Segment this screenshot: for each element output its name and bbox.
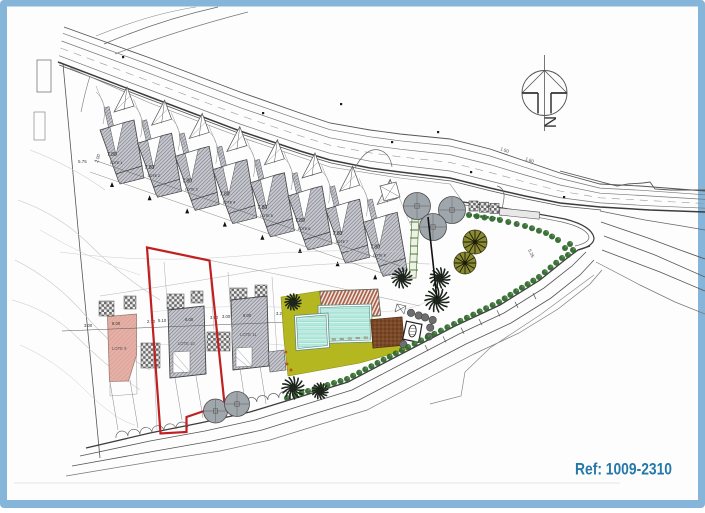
svg-text:5.10: 5.10 bbox=[158, 318, 167, 323]
svg-text:7.80: 7.80 bbox=[107, 152, 117, 158]
svg-text:LOTE 2: LOTE 2 bbox=[148, 174, 160, 178]
svg-text:7.80: 7.80 bbox=[333, 231, 343, 237]
svg-text:LOTE 8: LOTE 8 bbox=[373, 253, 385, 257]
svg-text:3.00: 3.00 bbox=[222, 314, 231, 319]
svg-text:LOTE 9: LOTE 9 bbox=[112, 346, 127, 351]
svg-text:LOTE 6: LOTE 6 bbox=[298, 227, 310, 231]
svg-text:7.80: 7.80 bbox=[182, 178, 192, 184]
svg-text:Ref: 1009-2310: Ref: 1009-2310 bbox=[575, 461, 672, 479]
svg-text:LOTE 3: LOTE 3 bbox=[185, 187, 197, 191]
svg-text:LOTE 1: LOTE 1 bbox=[110, 161, 122, 165]
svg-text:7.80: 7.80 bbox=[295, 218, 305, 224]
svg-text:7.80: 7.80 bbox=[370, 244, 380, 250]
svg-text:7.80: 7.80 bbox=[145, 165, 155, 171]
svg-text:LOTE 4: LOTE 4 bbox=[223, 201, 235, 205]
svg-text:8.00: 8.00 bbox=[243, 313, 252, 318]
svg-text:3.00: 3.00 bbox=[84, 323, 93, 328]
svg-text:7.80: 7.80 bbox=[220, 192, 230, 198]
svg-text:LOTE 10: LOTE 10 bbox=[178, 341, 195, 346]
svg-text:5.75: 5.75 bbox=[78, 159, 87, 164]
svg-text:N: N bbox=[541, 116, 560, 128]
svg-text:LOTE 7: LOTE 7 bbox=[336, 240, 348, 244]
svg-text:8.00: 8.00 bbox=[112, 321, 121, 326]
svg-text:7.80: 7.80 bbox=[257, 205, 267, 211]
svg-text:LOTE 11: LOTE 11 bbox=[240, 332, 257, 337]
svg-text:LOTE 5: LOTE 5 bbox=[260, 214, 272, 218]
svg-text:8.00: 8.00 bbox=[185, 317, 194, 322]
